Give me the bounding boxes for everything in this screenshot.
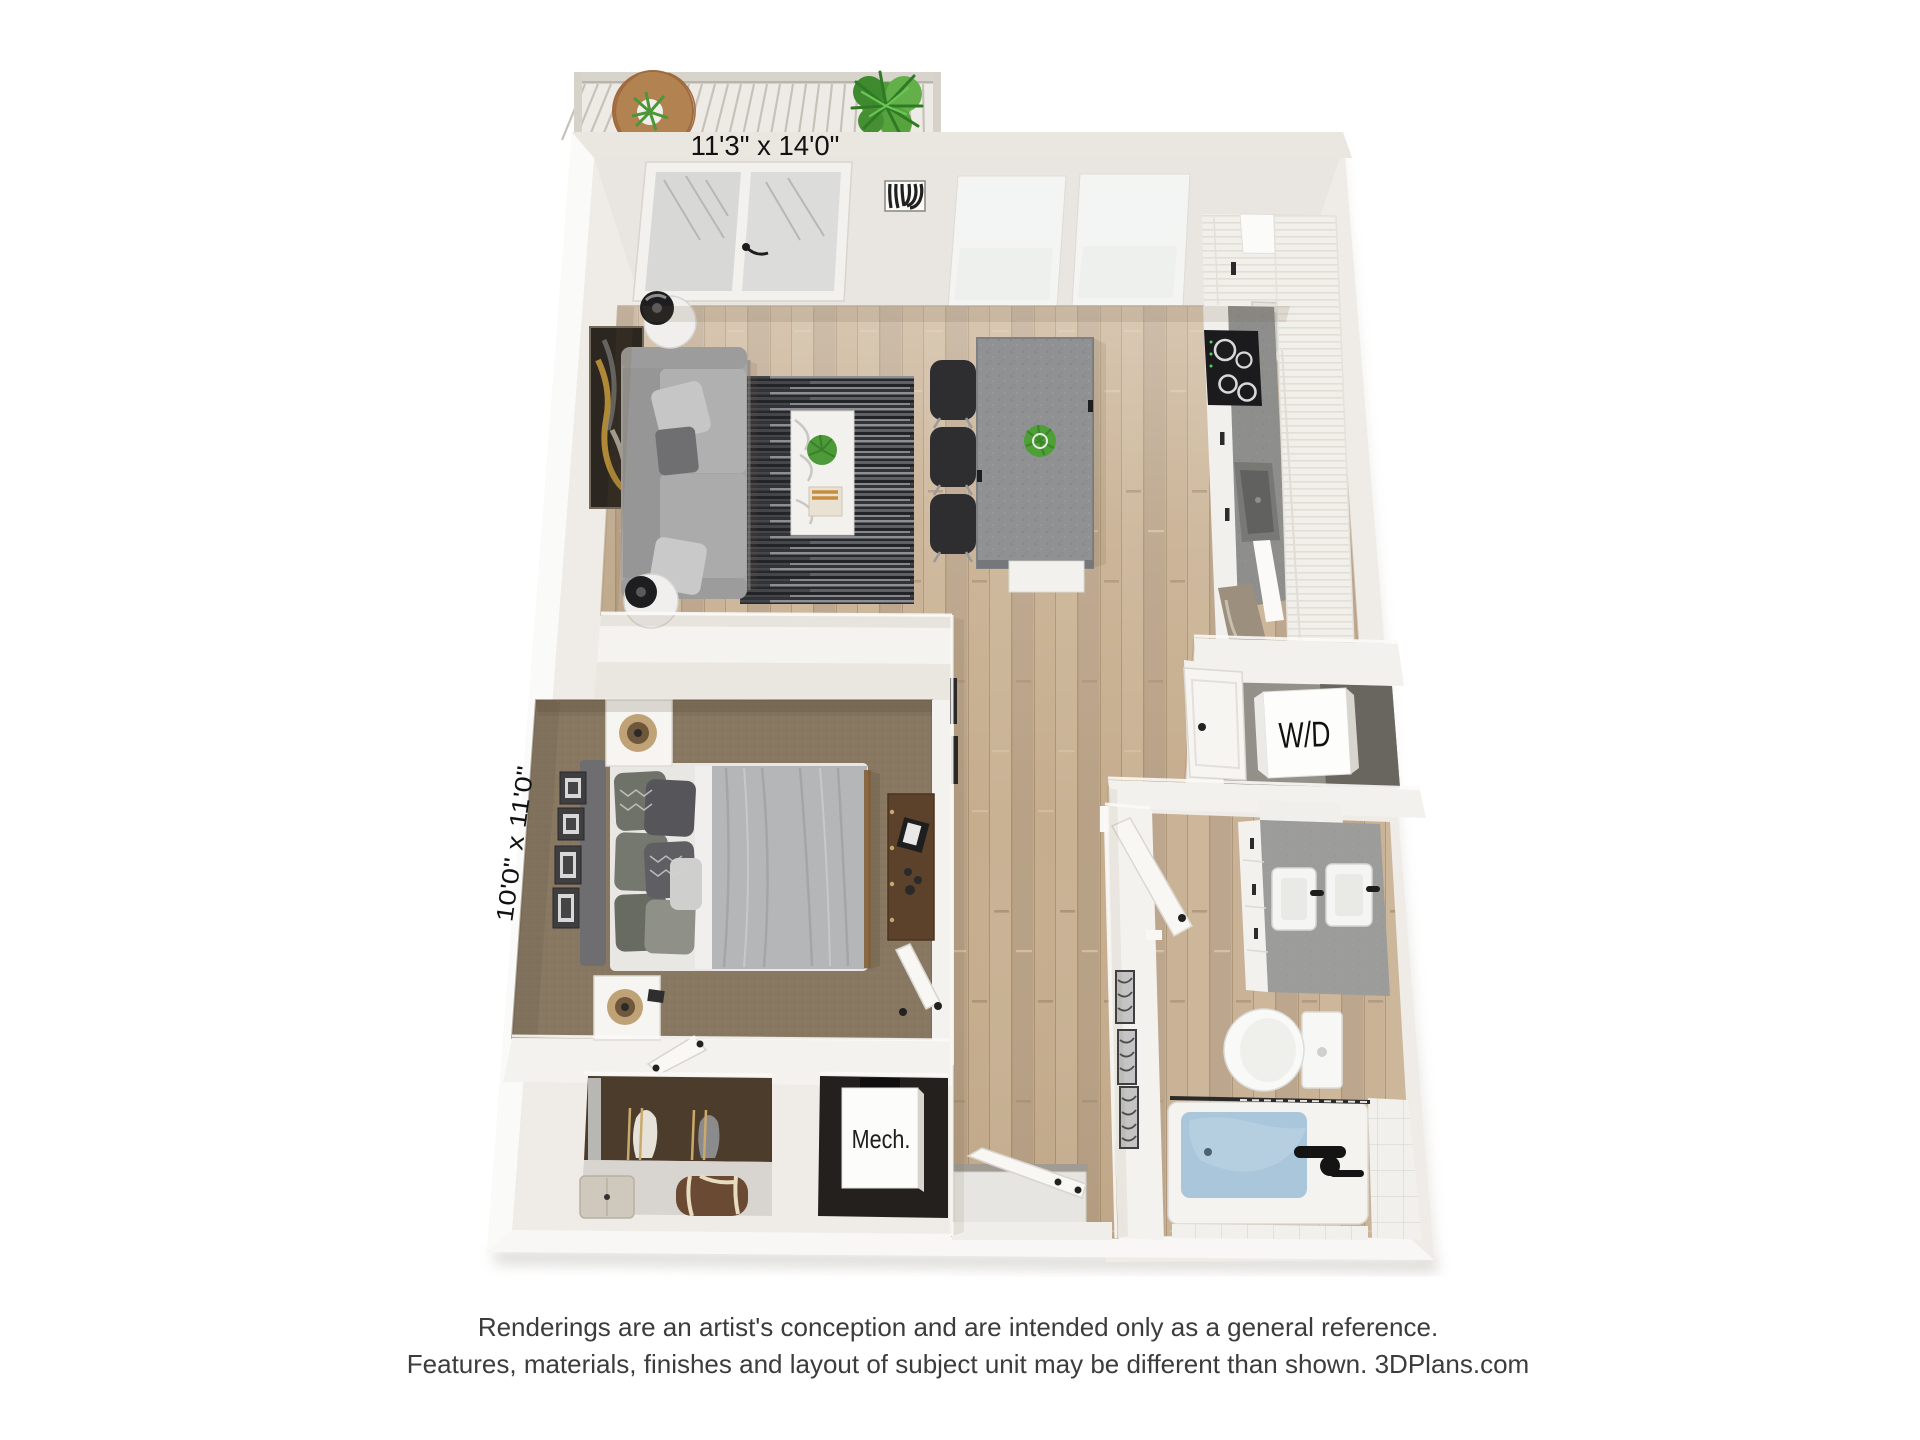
svg-text:Mech.: Mech. [852, 1125, 911, 1154]
svg-text:W/D: W/D [1278, 713, 1331, 756]
svg-text:Renderings are an artist's con: Renderings are an artist's conception an… [478, 1312, 1438, 1342]
svg-text:Features, materials, finishes: Features, materials, finishes and layout… [407, 1349, 1529, 1379]
svg-text:11'3" x 14'0": 11'3" x 14'0" [691, 130, 840, 161]
